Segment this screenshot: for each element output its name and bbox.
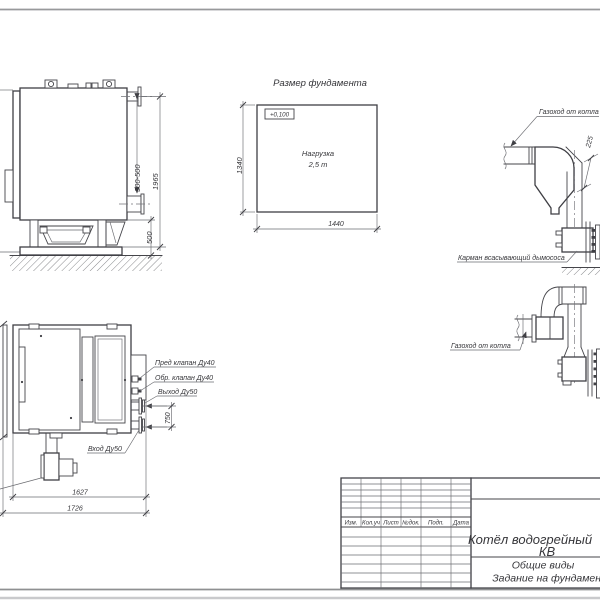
- col-izm: Изм.: [345, 521, 358, 527]
- smoke-exhauster: [558, 349, 600, 398]
- dim-225: 225: [585, 135, 595, 149]
- duct-dim-225: 225: [577, 135, 598, 192]
- flue-label-1: Газоход от котла: [539, 108, 599, 116]
- product-name-line1: Котёл водогрейный: [468, 532, 592, 547]
- col-list: Лист: [382, 521, 398, 527]
- elevation-mark: +0,100: [270, 112, 290, 119]
- col-ndoc: №док.: [402, 520, 420, 527]
- label-inlet: Вход Ду50: [88, 445, 122, 453]
- dim-500: 500: [145, 231, 154, 244]
- label-safety-valve: Пред клапан Ду40: [155, 359, 215, 367]
- dim-1440: 1440: [328, 221, 344, 228]
- pocket-label: Карман всасывающий дымососа: [458, 254, 565, 262]
- col-koluch: Кол.уч: [362, 521, 380, 527]
- boiler-supports: [20, 220, 125, 255]
- burner-assembly: [0, 433, 77, 489]
- col-data: Дата: [452, 521, 469, 527]
- dim-750: 750: [165, 412, 172, 424]
- side-view-dimensions: 1965 300-500 500: [122, 92, 166, 259]
- foundation-title: Размер фундамента: [273, 78, 367, 89]
- cyclone: [535, 147, 582, 214]
- label-outlet: Выход Ду50: [158, 388, 197, 396]
- dim-1965: 1965: [151, 172, 160, 190]
- gas-duct-cyclone-view: Газоход от котла: [457, 108, 600, 275]
- inlet-pipe: [131, 417, 167, 433]
- drawing-canvas: 1965 300-500 500 Размер фундамента +0,10…: [0, 0, 600, 600]
- label-check-valve: Обр. клапан Ду40: [155, 374, 213, 382]
- foundation-load-line2: 2,5 т: [308, 160, 328, 169]
- doc-type-line1: Общие виды: [512, 560, 575, 572]
- title-block: Изм. Кол.уч Лист №док. Подп. Дата Котёл …: [341, 478, 600, 588]
- flue-inlet-box: [515, 314, 563, 344]
- dim-300-500: 300-500: [133, 164, 142, 192]
- foundation-plan-view: Размер фундамента +0,100 Нагрузка 2,5 т …: [235, 78, 381, 233]
- foundation-load-line1: Нагрузка: [302, 149, 334, 158]
- col-podp: Подп.: [428, 521, 444, 527]
- dim-1726: 1726: [67, 506, 83, 513]
- product-name-line2: КВ: [539, 544, 556, 559]
- dim-1627: 1627: [72, 490, 89, 497]
- boiler-top-fittings: [45, 80, 115, 88]
- document-name-area: Котёл водогрейный КВ Общие виды Задание …: [468, 499, 600, 585]
- revision-table: Изм. Кол.уч Лист №док. Подп. Дата: [341, 478, 471, 588]
- gas-duct-side-view: Газоход от котла: [450, 284, 600, 398]
- doc-type-line2: Задание на фундамент: [492, 573, 600, 585]
- drawing-page: 1965 300-500 500 Размер фундамента +0,10…: [0, 0, 600, 600]
- dim-1340: 1340: [235, 156, 244, 174]
- flue-label-2: Газоход от котла: [451, 342, 511, 350]
- boiler-side-view: 1965 300-500 500: [0, 80, 166, 271]
- boiler-plan-view: Пред клапан Ду40 Обр. клапан Ду40 Выход …: [0, 321, 216, 517]
